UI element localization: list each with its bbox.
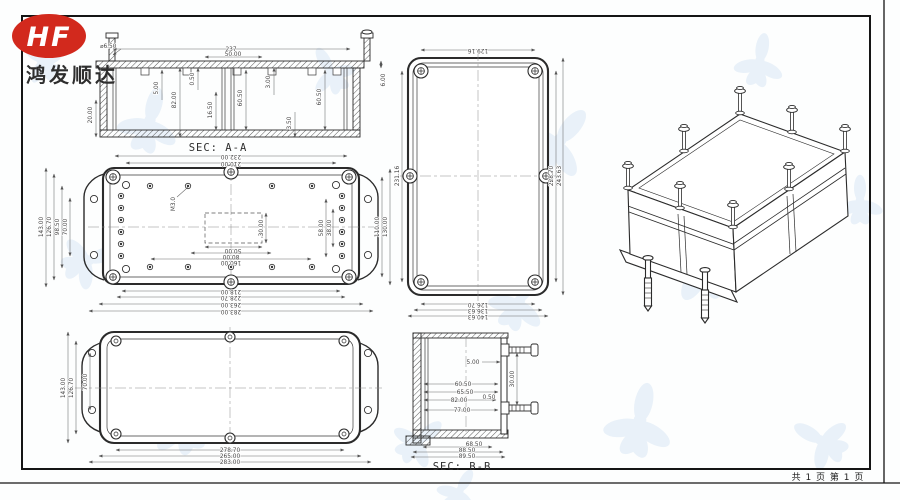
isometric-view — [620, 86, 850, 323]
drawing-sheet: 237 50.00 ⌀6.50 20.00 6.00 5.00 82.00 0.… — [0, 0, 900, 500]
dim-0p5: 0.50 — [190, 72, 196, 85]
dim-s89-5: 89.50 — [459, 454, 476, 460]
dim-283: 283.00 — [221, 308, 242, 314]
dim-s65-5: 65.50 — [457, 390, 474, 396]
thread-note: M3.0 — [171, 197, 177, 212]
dim-38: 38.00 — [327, 219, 333, 236]
section-aa-view: 237 50.00 ⌀6.50 20.00 6.00 5.00 82.00 0.… — [88, 30, 387, 154]
company-logo: HF 鸿发顺达 — [12, 14, 118, 87]
dim-s30: 30.00 — [510, 370, 516, 387]
dim-143: 143.00 — [39, 217, 45, 238]
dim-228-7: 228.70 — [221, 294, 242, 300]
dim-6: 6.00 — [381, 73, 387, 86]
dim-130: 130.00 — [383, 217, 389, 238]
plan-view-outside: 143.00 126.70 70.00 278.70 265.00 283.00 — [61, 327, 382, 466]
dim-60p5a: 60.50 — [238, 89, 244, 106]
dim-30: 30.00 — [259, 219, 265, 236]
plan-view-inside: M3.0 232.00 210.00 218.00 228.70 263.00 … — [39, 153, 390, 314]
dim-b126-7: 126.70 — [69, 378, 75, 399]
dim-b283: 283.00 — [220, 460, 241, 466]
dim-136-63: 136.63 — [468, 307, 489, 313]
dim-s82: 82.00 — [451, 398, 468, 404]
dim-232: 232.00 — [221, 153, 242, 159]
page-info: 共 1 页 第 1 页 — [792, 471, 865, 483]
dim-82: 82.00 — [172, 91, 178, 108]
dim-s77: 77.00 — [454, 408, 471, 414]
dim-60p5b: 60.50 — [317, 88, 323, 105]
dim-243-63: 243.63 — [557, 166, 563, 187]
dim-263: 263.00 — [221, 301, 242, 307]
section-bb-view: 5.00 60.50 65.50 82.00 0.50 77.00 30.00 … — [406, 333, 538, 473]
dim-b70: 70.00 — [83, 373, 89, 390]
lid-tabs — [141, 68, 341, 75]
lid-plan-view: 129.16 231.16 228.70 243.63 126.70 136.6… — [395, 47, 563, 319]
cover-screw-right — [361, 30, 373, 61]
dim-160: 160.00 — [221, 259, 242, 265]
dim-16p5: 16.50 — [208, 101, 214, 118]
dim-218: 218.00 — [221, 288, 242, 294]
dim-228-70: 228.70 — [549, 166, 555, 187]
dim-210: 210.00 — [221, 160, 242, 166]
dim-110: 110.00 — [375, 217, 381, 238]
cad-drawing: 237 50.00 ⌀6.50 20.00 6.00 5.00 82.00 0.… — [0, 0, 900, 500]
dim-231-16: 231.16 — [395, 166, 401, 187]
section-aa-label: SEC: A-A — [189, 142, 248, 154]
dim-b143: 143.00 — [61, 378, 67, 399]
dim-3: 3.00 — [266, 75, 272, 88]
dim-3p5: 3.50 — [287, 116, 293, 129]
section-bb-label: SEC: B-B — [433, 461, 492, 473]
dim-hole-dia: ⌀6.50 — [100, 44, 117, 50]
dim-126-70: 126.70 — [468, 301, 489, 307]
dim-140-63: 140.63 — [468, 313, 489, 319]
dim-20: 20.00 — [88, 106, 94, 123]
dim-58: 58.00 — [319, 219, 325, 236]
dim-5: 5.00 — [154, 81, 160, 94]
dim-126-7: 126.70 — [47, 217, 53, 238]
company-name: 鸿发顺达 — [26, 63, 118, 87]
dim-129-16: 129.16 — [468, 47, 489, 53]
dim-80: 80.00 — [222, 253, 239, 259]
dim-s60-5: 60.50 — [455, 382, 472, 388]
dim-98-5: 98.50 — [55, 218, 61, 235]
dim-s5: 5.00 — [467, 360, 480, 366]
dim-50: 50.00 — [224, 247, 241, 253]
dim-70: 70.00 — [63, 218, 69, 235]
logo-monogram: HF — [26, 22, 71, 53]
dim-top-inner: 50.00 — [225, 52, 242, 58]
dim-s0-5: 0.50 — [483, 395, 496, 401]
